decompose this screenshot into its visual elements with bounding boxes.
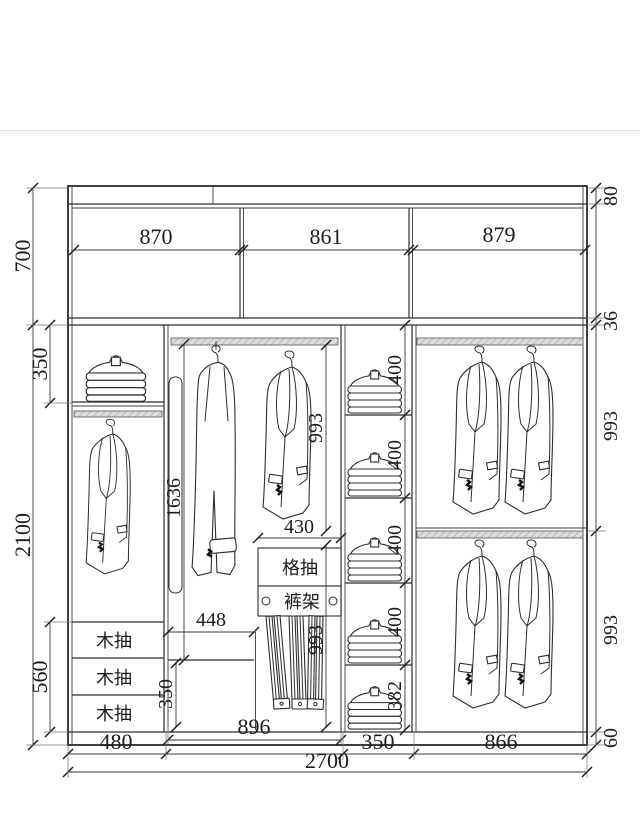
label-wood-drawer-3: 木抽 xyxy=(96,704,132,725)
dim-left-2100: 2100 xyxy=(10,513,35,557)
hanging-suit-icon xyxy=(505,346,553,514)
wardrobe-drawing: 870 861 879 700 350 2100 560 80 36 993 9… xyxy=(0,0,640,825)
dim-shelf-382: 382 xyxy=(384,681,406,711)
dim-left-350: 350 xyxy=(27,348,52,381)
dim-shelf-400-4: 400 xyxy=(384,607,406,637)
hanging-rod-bay1 xyxy=(74,411,162,417)
dim-right-36: 36 xyxy=(600,311,622,331)
dim-right-993-lower: 993 xyxy=(600,615,622,645)
dim-bottom-866: 866 xyxy=(485,729,518,754)
label-wood-drawer-2: 木抽 xyxy=(96,668,132,689)
hanging-suit-icon xyxy=(453,540,501,708)
dim-top-861: 861 xyxy=(310,224,343,249)
hanging-rod-bay2 xyxy=(171,338,338,345)
dim-inner-1636: 1636 xyxy=(163,478,185,518)
label-grid-drawer: 格抽 xyxy=(282,558,318,579)
dim-bottom-350: 350 xyxy=(362,729,395,754)
label-wood-drawer-1: 木抽 xyxy=(96,631,132,652)
hanging-suit-icon xyxy=(505,540,553,708)
hanging-rod-bay4-top xyxy=(417,338,583,345)
dim-right-60: 60 xyxy=(600,728,622,748)
trousers-icon xyxy=(266,615,290,709)
label-pants-rack: 裤架 xyxy=(284,592,320,613)
hanging-coat-icon xyxy=(86,419,130,574)
dim-inner-448: 448 xyxy=(196,609,226,631)
dim-shelf-400-3: 400 xyxy=(384,525,406,555)
dim-bottom-480: 480 xyxy=(100,729,133,754)
dim-shelf-400-1: 400 xyxy=(384,355,406,385)
dim-right-80: 80 xyxy=(600,186,622,206)
bay4-rails xyxy=(416,338,587,538)
dim-left-560: 560 xyxy=(27,661,52,694)
hanging-suit-icon xyxy=(263,351,311,519)
page-divider xyxy=(0,131,640,137)
hanging-longcoat-icon xyxy=(192,341,237,575)
dim-inner-350: 350 xyxy=(155,679,177,709)
folded-clothes-icon xyxy=(86,356,145,401)
dim-inner-430: 430 xyxy=(284,516,314,538)
dim-top-879: 879 xyxy=(483,222,516,247)
dim-left-700: 700 xyxy=(10,240,35,273)
hanging-rod-bay4-mid xyxy=(417,531,583,538)
dim-top-870: 870 xyxy=(140,224,173,249)
wardrobe-elevation-page: 870 861 879 700 350 2100 560 80 36 993 9… xyxy=(0,0,640,825)
dim-inner-993-lower: 993 xyxy=(305,625,327,655)
dim-shelf-400-2: 400 xyxy=(384,440,406,470)
dim-bottom-2700: 2700 xyxy=(305,748,349,773)
dim-inner-993-upper: 993 xyxy=(305,413,327,443)
dim-right-993-upper: 993 xyxy=(600,411,622,441)
hanging-suit-icon xyxy=(453,346,501,514)
dim-bottom-896: 896 xyxy=(238,714,271,739)
